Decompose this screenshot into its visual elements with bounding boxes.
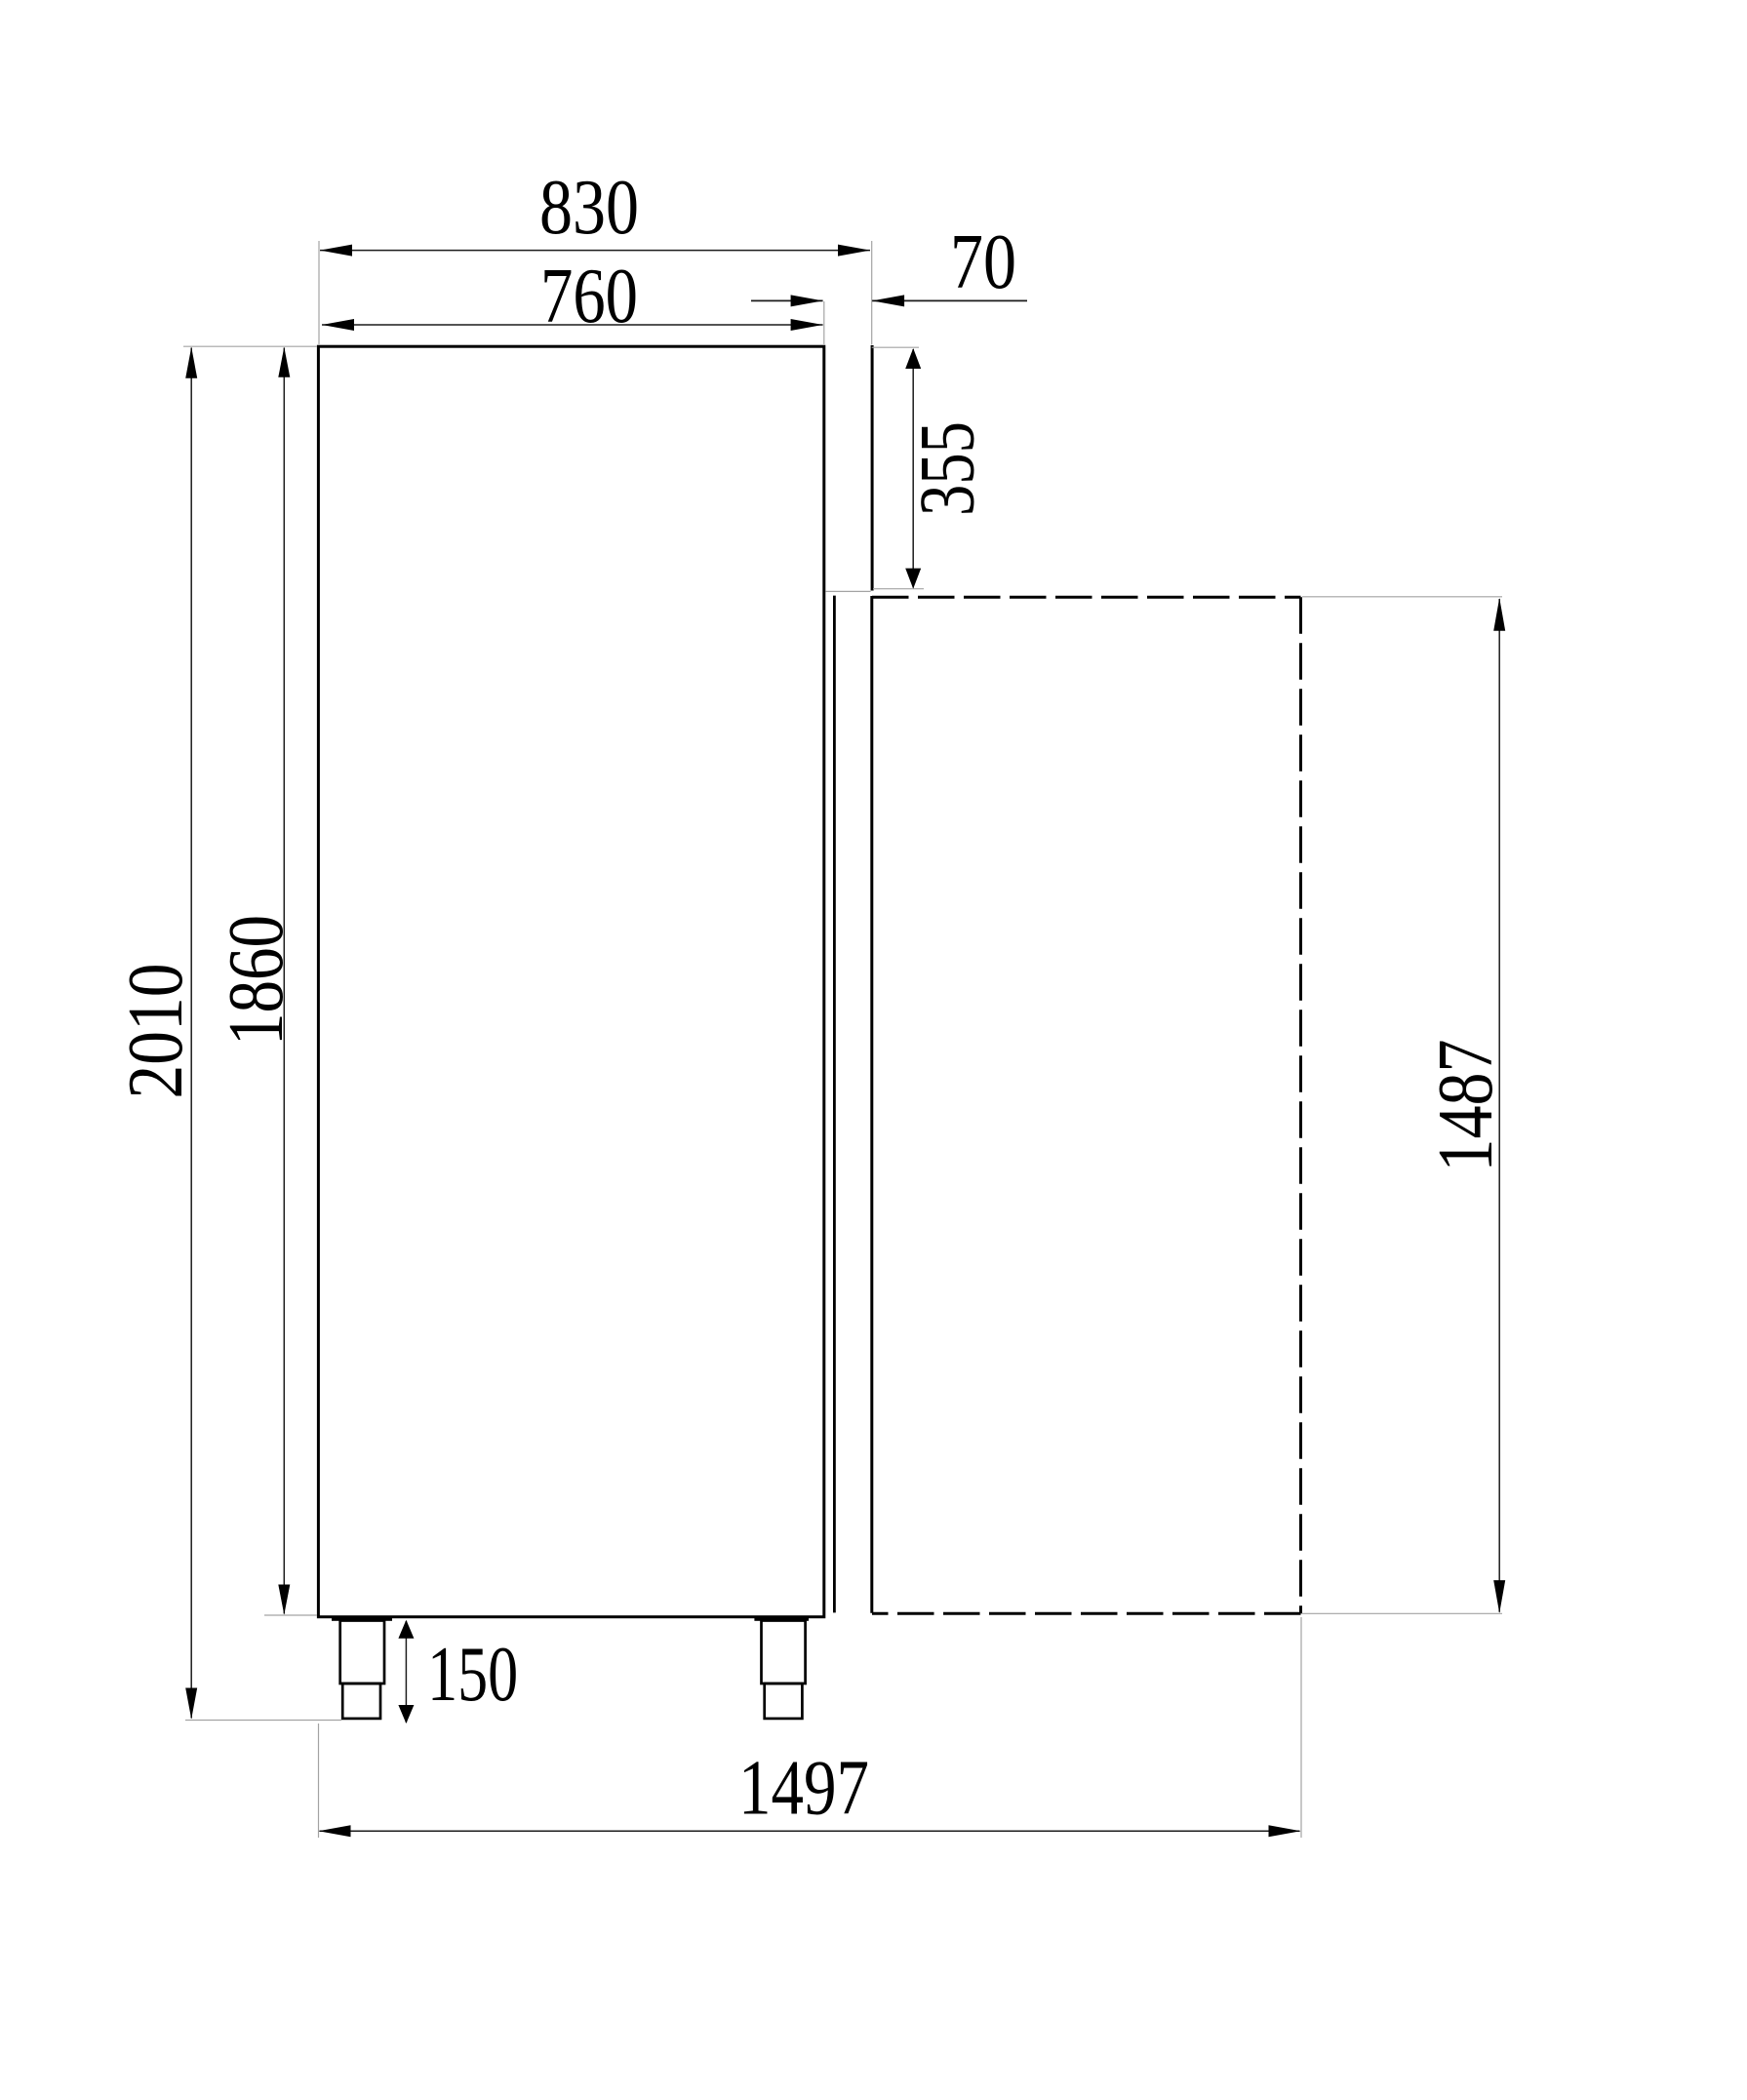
svg-text:1487: 1487 xyxy=(1423,1040,1509,1172)
svg-text:2010: 2010 xyxy=(113,964,199,1099)
svg-text:1497: 1497 xyxy=(738,1746,869,1832)
svg-text:355: 355 xyxy=(905,421,991,516)
svg-text:150: 150 xyxy=(427,1632,518,1718)
svg-text:1860: 1860 xyxy=(214,915,299,1046)
svg-text:70: 70 xyxy=(950,219,1016,305)
svg-text:830: 830 xyxy=(539,165,639,251)
svg-text:760: 760 xyxy=(540,254,638,339)
